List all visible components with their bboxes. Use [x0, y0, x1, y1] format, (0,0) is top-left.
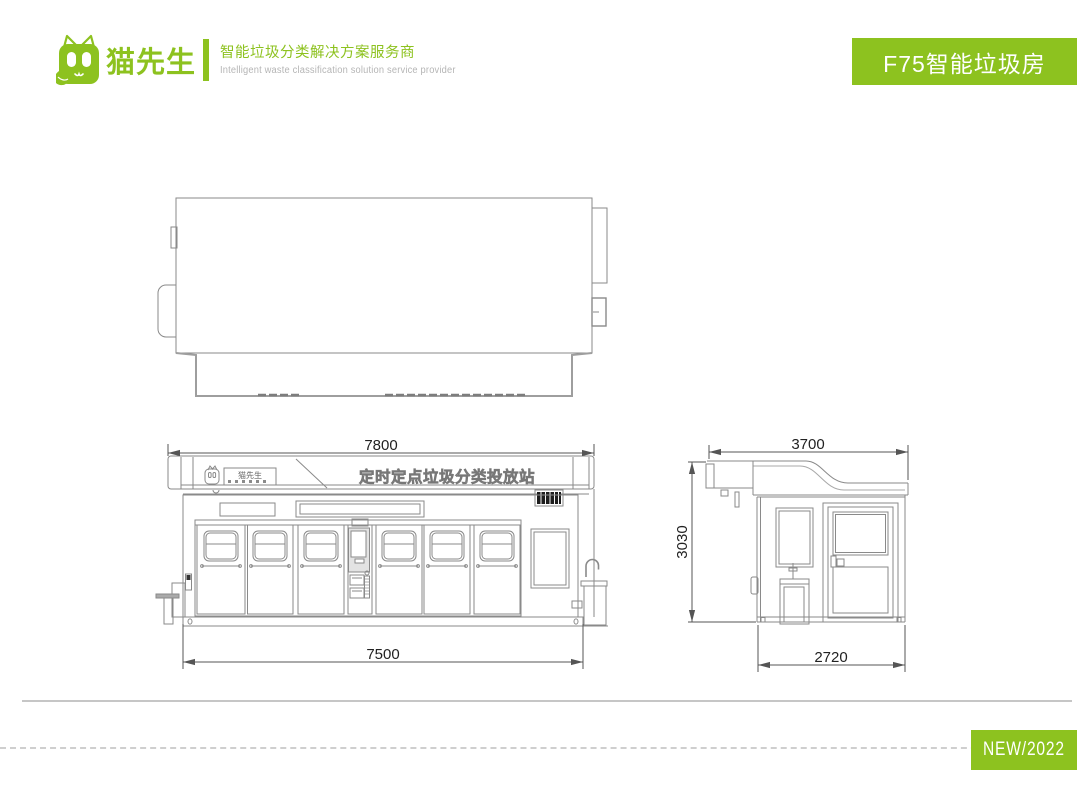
door-2: [248, 525, 294, 614]
dim-front-top: 7800: [364, 437, 397, 454]
side-elevation: [706, 461, 908, 624]
year-badge: NEW/2022: [971, 730, 1077, 770]
plan-view: [158, 198, 607, 396]
dim-front-bottom: 7500: [366, 646, 399, 663]
dimensions: [168, 444, 908, 672]
door-5: [424, 525, 470, 614]
footer-solid-line: [22, 700, 1072, 702]
footer-dashed-line: [0, 747, 1077, 749]
door-3: [298, 525, 344, 614]
door-1: [197, 525, 245, 614]
dim-side-bottom: 2720: [814, 649, 847, 666]
door-4: [376, 525, 422, 614]
spec-sheet-page: 猫先生 智能垃圾分类解决方案服务商 Intelligent waste clas…: [0, 0, 1077, 793]
fascia-branding: 猫先生 定时定点垃圾分类投放站: [205, 466, 535, 486]
door-6: [474, 525, 520, 614]
fascia-banner-text: 定时定点垃圾分类投放站: [359, 467, 535, 486]
dim-side-height: 3030: [674, 525, 691, 558]
year-badge-label: NEW/2022: [983, 739, 1065, 761]
dim-side-top: 3700: [791, 436, 824, 453]
technical-drawing: 猫先生 定时定点垃圾分类投放站: [0, 0, 1077, 793]
fascia-logo-text: 猫先生: [238, 470, 262, 480]
control-panel: [348, 519, 372, 614]
